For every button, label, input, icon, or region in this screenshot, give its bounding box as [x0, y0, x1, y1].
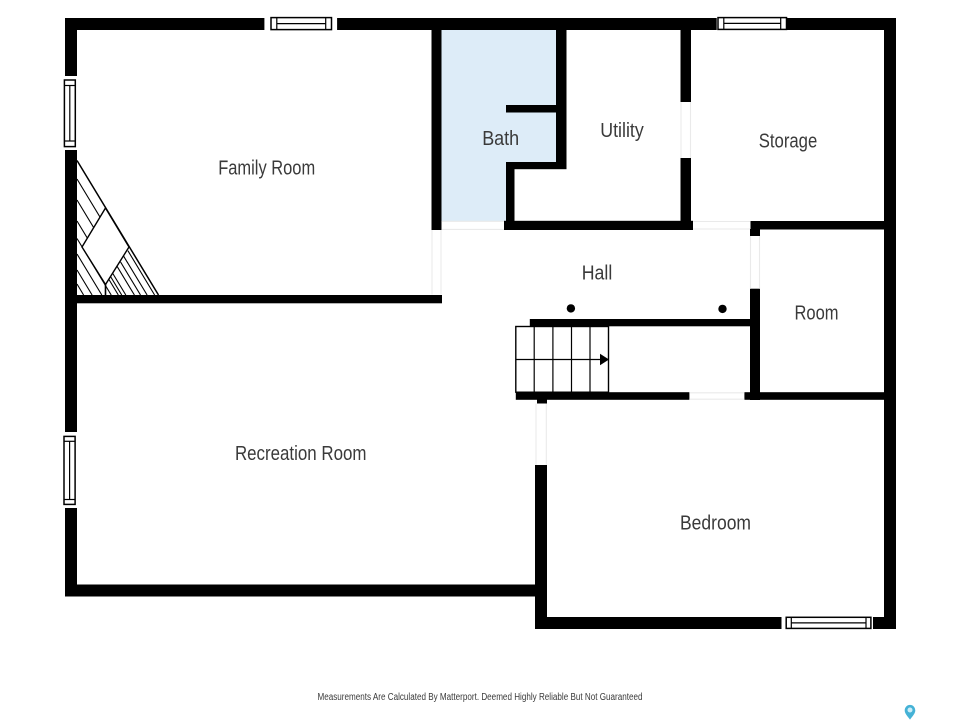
svg-text:Bath: Bath: [482, 128, 519, 150]
svg-text:Recreation Room: Recreation Room: [235, 443, 367, 465]
svg-text:Storage: Storage: [759, 131, 818, 153]
svg-text:Family Room: Family Room: [218, 158, 315, 180]
svg-text:Room: Room: [795, 303, 839, 325]
svg-text:Bedroom: Bedroom: [680, 513, 751, 535]
svg-text:Hall: Hall: [582, 263, 613, 285]
svg-text:Utility: Utility: [600, 120, 644, 142]
svg-text:Measurements Are Calculated By: Measurements Are Calculated By Matterpor…: [318, 692, 643, 703]
